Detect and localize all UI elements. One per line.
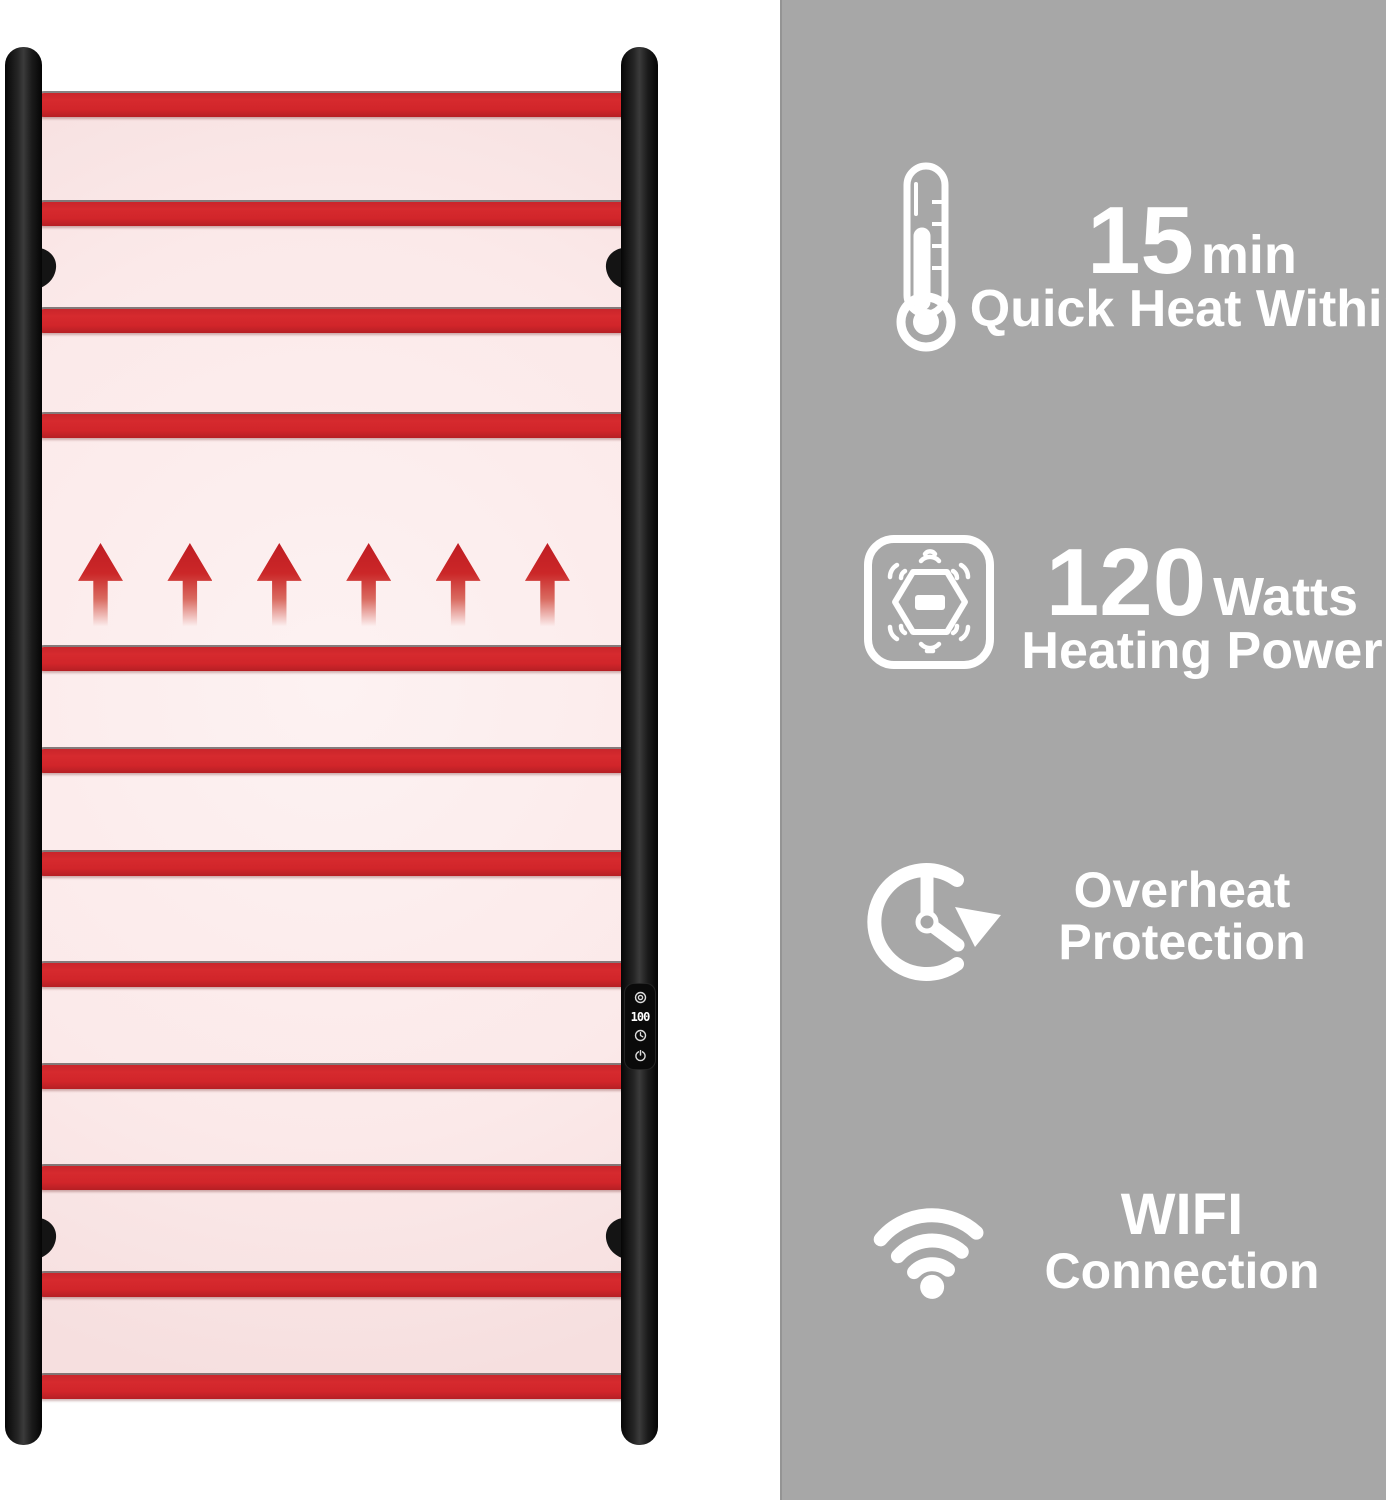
heating-bar	[34, 202, 631, 226]
temperature-display: 100	[631, 1011, 650, 1023]
wall-mount-bracket	[602, 248, 622, 288]
heat-glow-panel	[42, 105, 621, 1390]
wall-mount-bracket	[40, 1218, 60, 1258]
product-infographic: 100 15min	[0, 0, 1386, 1500]
heat-arrow-icon	[167, 543, 212, 629]
power-icon	[634, 1049, 647, 1062]
heating-bar	[34, 647, 631, 671]
heating-bar	[34, 1273, 631, 1297]
temp-dial-icon	[634, 991, 647, 1004]
heat-arrow-icon	[436, 543, 481, 629]
timer-clock-icon	[634, 1029, 647, 1042]
feature-value: 15min	[932, 193, 1386, 289]
feature-label: Quick Heat Within	[932, 283, 1386, 335]
heating-bar	[34, 1375, 631, 1399]
feature-wifi-connection: WIFI Connection	[922, 1187, 1386, 1296]
feature-quick-heat: 15min Quick Heat Within	[932, 193, 1386, 335]
heat-rise-arrows	[78, 543, 570, 629]
feature-label: Heating Power	[942, 625, 1386, 677]
feature-label: Overheat	[922, 867, 1386, 915]
heating-bar	[34, 963, 631, 987]
heat-arrow-icon	[78, 543, 123, 629]
feature-label: Protection	[922, 919, 1386, 967]
heating-bar	[34, 309, 631, 333]
heating-bar	[34, 93, 631, 117]
control-panel: 100	[624, 983, 656, 1070]
features-panel: 15min Quick Heat Within 120Watts	[780, 0, 1386, 1500]
towel-warmer-scene: 100	[0, 0, 780, 1500]
right-rail	[621, 47, 658, 1445]
left-rail	[5, 47, 42, 1445]
feature-label: WIFI	[922, 1187, 1386, 1242]
feature-overheat-protection: Overheat Protection	[922, 867, 1386, 966]
wall-mount-bracket	[602, 1218, 622, 1258]
heat-arrow-icon	[257, 543, 302, 629]
feature-value: 120Watts	[942, 535, 1386, 631]
feature-heating-power: 120Watts Heating Power	[942, 535, 1386, 677]
heat-arrow-icon	[346, 543, 391, 629]
heat-arrow-icon	[525, 543, 570, 629]
feature-label: Connection	[922, 1248, 1386, 1296]
wall-mount-bracket	[40, 248, 60, 288]
heating-bar	[34, 414, 631, 438]
heating-bar	[34, 1166, 631, 1190]
heating-bar	[34, 749, 631, 773]
heating-bar	[34, 852, 631, 876]
heating-bar	[34, 1065, 631, 1089]
